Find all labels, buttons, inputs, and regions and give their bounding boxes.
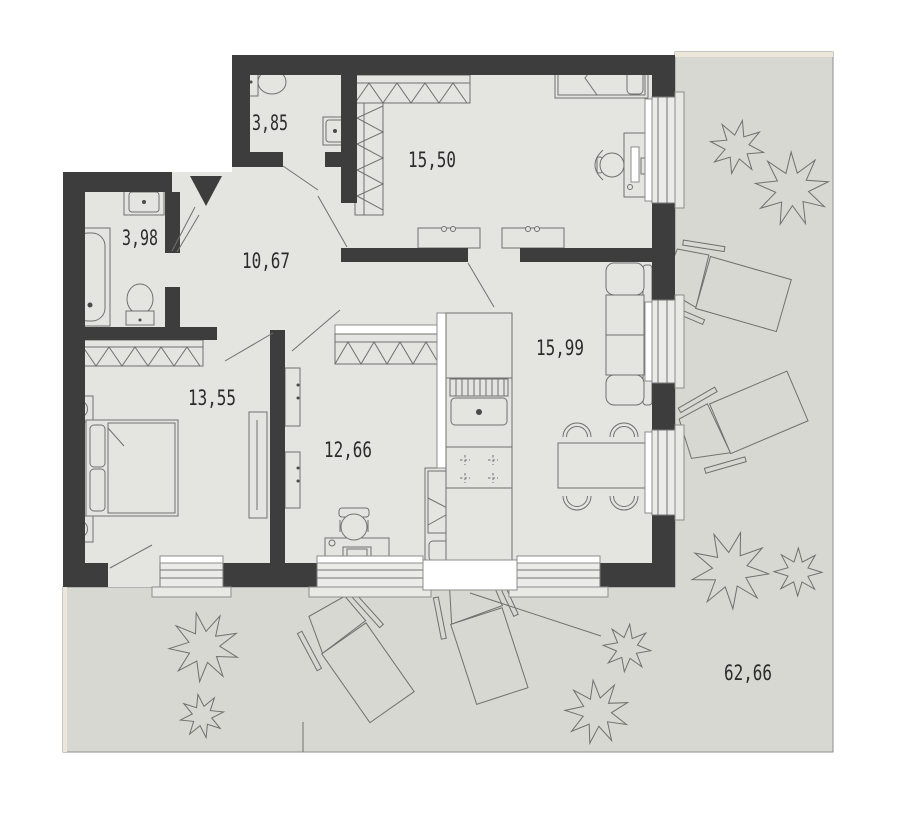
kitchen-sink-icon xyxy=(451,398,507,425)
room-area-bathroom: 3,98 xyxy=(122,226,158,250)
room-area-terrace: 62,66 xyxy=(724,661,772,685)
toilet-icon xyxy=(126,284,154,325)
floor-plan: 3,85 15,50 3,98 10,67 13,55 12,66 15,99 … xyxy=(0,0,900,816)
terrace-trim-left xyxy=(63,587,67,752)
wardrobe-icon xyxy=(335,325,439,364)
mirror-cabinet-icon xyxy=(249,412,267,518)
room-area-bedroom-top: 15,50 xyxy=(408,148,456,172)
kitchen-counter-icon xyxy=(437,313,512,563)
monitor-icon xyxy=(631,147,639,182)
office-chair-icon xyxy=(339,508,369,540)
room-area-room-middle: 12,66 xyxy=(324,438,372,462)
wardrobe-icon xyxy=(70,340,203,366)
dish-rack-icon xyxy=(450,379,508,396)
floor-plan-canvas: 3,85 15,50 3,98 10,67 13,55 12,66 15,99 … xyxy=(0,0,900,816)
double-bed-icon xyxy=(86,420,178,516)
terrace-trim-top xyxy=(675,52,833,57)
tree-icon xyxy=(774,548,822,596)
dining-table-icon xyxy=(558,443,650,488)
room-area-living-kitchen: 15,99 xyxy=(536,336,584,360)
room-area-wc: 3,85 xyxy=(252,111,288,135)
sink-icon xyxy=(124,189,164,215)
fridge-icon xyxy=(446,313,512,378)
room-area-bedroom-left: 13,55 xyxy=(188,386,236,410)
room-area-hallway: 10,67 xyxy=(242,249,290,273)
mouse-icon xyxy=(628,185,633,190)
terrace-door xyxy=(423,560,517,590)
